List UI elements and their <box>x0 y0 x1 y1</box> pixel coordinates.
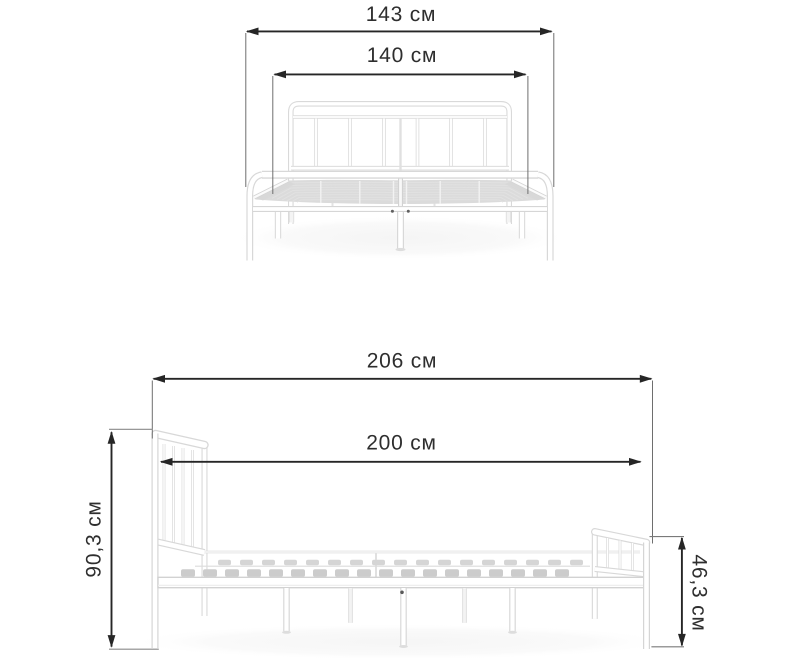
svg-text:143 см: 143 см <box>366 3 437 26</box>
svg-text:200 см: 200 см <box>366 432 437 455</box>
svg-text:140 см: 140 см <box>367 44 438 67</box>
svg-text:90,3 см: 90,3 см <box>83 500 106 577</box>
svg-text:206 см: 206 см <box>367 350 438 373</box>
svg-text:46,3 см: 46,3 см <box>688 554 711 631</box>
